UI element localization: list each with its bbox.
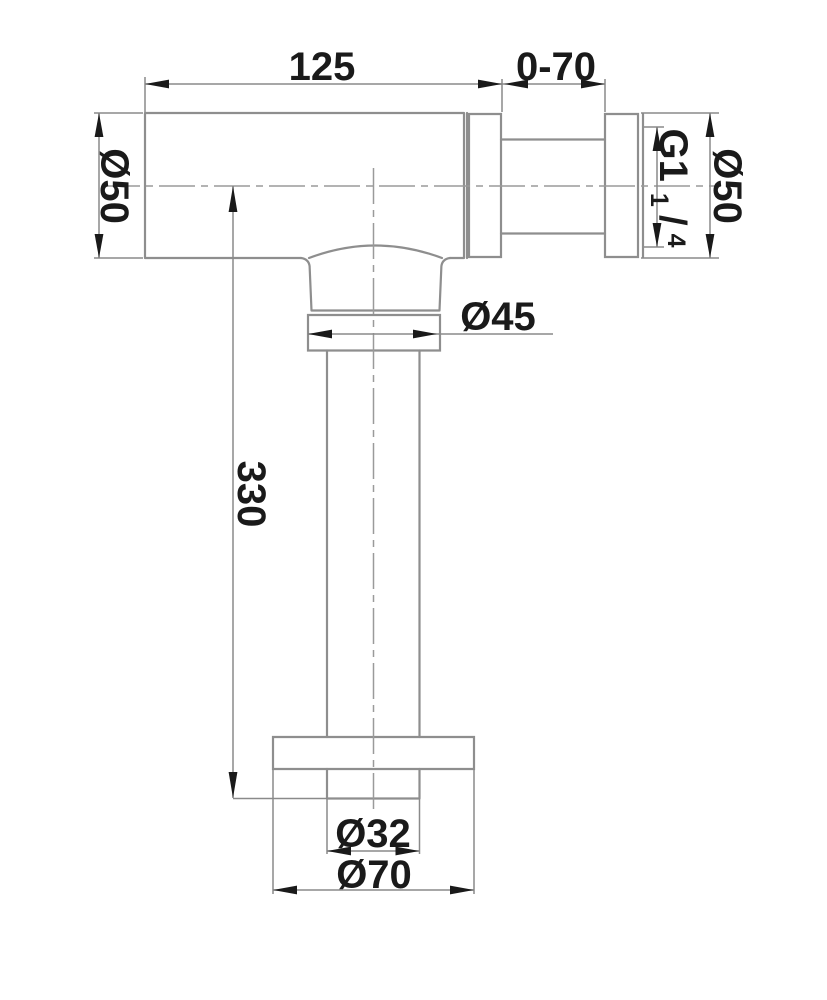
dim-adjust-0-70: 0-70 (516, 45, 596, 89)
dome-arc (309, 246, 442, 259)
dim-diameter-50-right: Ø50 (705, 148, 749, 224)
arrow-d50r-top (706, 113, 715, 137)
dim-height-330: 330 (229, 461, 273, 528)
thread-numerator: 1 (645, 193, 673, 207)
dim-diameter-70: Ø70 (336, 853, 412, 897)
arrow-d45-right (413, 330, 437, 339)
dim-diameter-32: Ø32 (335, 812, 411, 856)
dimension-lines (94, 77, 719, 894)
thread-denominator: 4 (662, 234, 690, 248)
arrow-d50l-top (95, 113, 104, 137)
arrow-d50l-bottom (95, 234, 104, 258)
dim-length-125: 125 (289, 45, 356, 89)
centerlines (104, 168, 721, 810)
arrow-d70-right (450, 886, 474, 895)
technical-drawing: 125 0-70 Ø50 G1 1 / 4 Ø50 Ø45 330 Ø32 Ø7… (0, 0, 827, 1000)
dim-thread-g1-4: G1 1 / 4 (642, 128, 695, 247)
dim-diameter-50-left: Ø50 (92, 148, 136, 224)
part-outline (145, 113, 643, 799)
technical-drawing-page: 125 0-70 Ø50 G1 1 / 4 Ø50 Ø45 330 Ø32 Ø7… (0, 0, 827, 1000)
thread-slash: / (651, 215, 693, 226)
arrow-330-bottom (229, 772, 238, 798)
arrow-125-left (145, 80, 169, 89)
arrow-125-right (478, 80, 502, 89)
dimension-arrows (95, 80, 715, 895)
outlet-neck (301, 258, 450, 311)
dim-diameter-45: Ø45 (460, 295, 536, 339)
arrow-d70-left (273, 886, 297, 895)
thread-prefix: G1 (651, 128, 695, 181)
arrow-d45-left (308, 330, 332, 339)
arrow-d50r-bottom (706, 234, 715, 258)
arrow-330-top (229, 186, 238, 212)
